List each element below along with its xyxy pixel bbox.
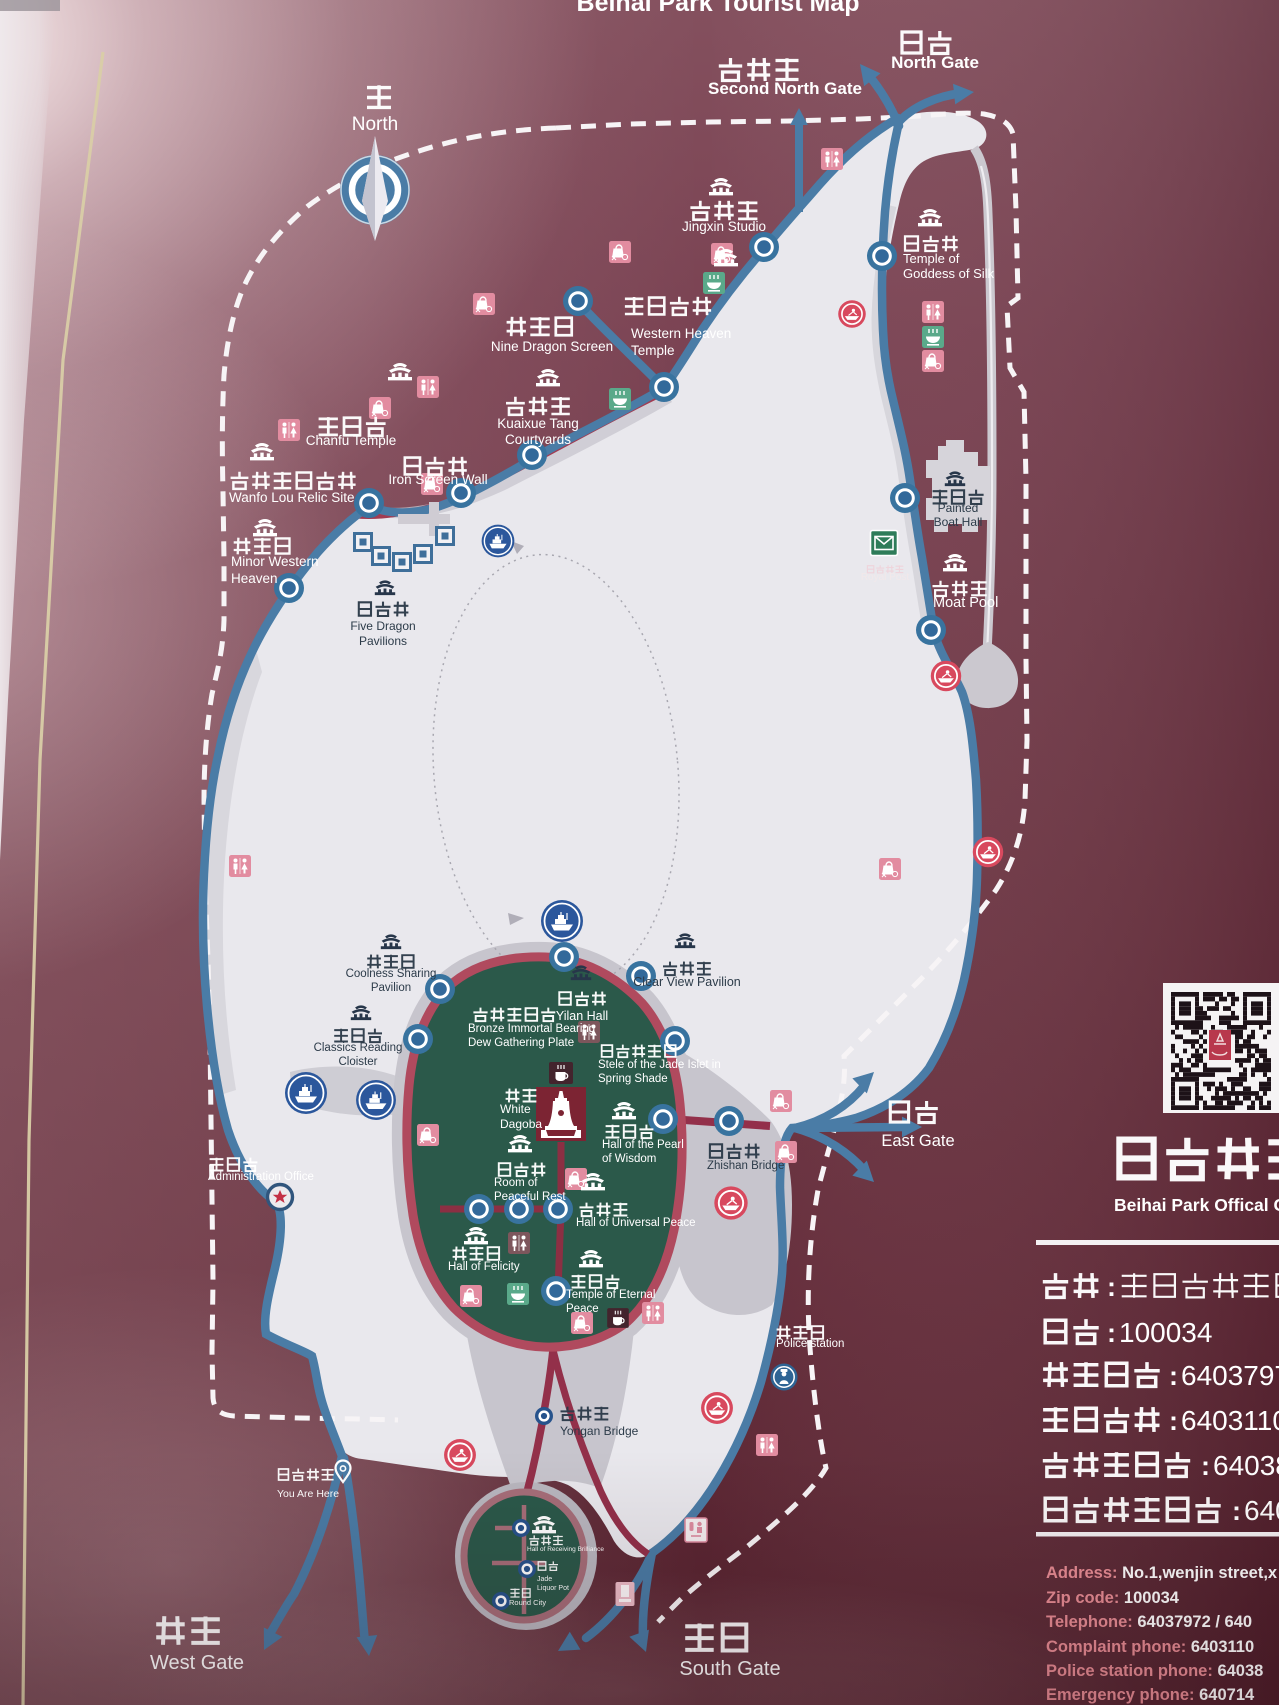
- svg-text:Coolness Sharing: Coolness Sharing: [346, 968, 437, 980]
- svg-text:Yilan Hall: Yilan Hall: [556, 1009, 608, 1023]
- svg-text:Stele of the Jade Islet in: Stele of the Jade Islet in: [598, 1059, 721, 1071]
- svg-text:Royal Post: Royal Post: [861, 572, 910, 583]
- svg-text:Cloister: Cloister: [339, 1056, 378, 1068]
- svg-text:Moat Pool: Moat Pool: [933, 595, 998, 611]
- svg-text:Peaceful Rest: Peaceful Rest: [494, 1191, 566, 1203]
- svg-text:Yongan Bridge: Yongan Bridge: [560, 1424, 639, 1438]
- svg-text:100034: 100034: [1119, 1317, 1212, 1348]
- svg-text:Beihai Park Tourist Map: Beihai Park Tourist Map: [577, 0, 860, 17]
- svg-text:Jingxin Studio: Jingxin Studio: [682, 219, 766, 234]
- svg-text:Courtyards: Courtyards: [505, 432, 571, 447]
- svg-text::: :: [1169, 1361, 1178, 1391]
- svg-text:Classics Reading: Classics Reading: [314, 1042, 403, 1054]
- svg-text:Dagoba: Dagoba: [500, 1117, 542, 1131]
- svg-text:Hall of Universal Peace: Hall of Universal Peace: [576, 1217, 696, 1229]
- svg-text:Police station: Police station: [776, 1338, 844, 1350]
- svg-text:Nine Dragon Screen: Nine Dragon Screen: [491, 339, 613, 354]
- svg-text:North: North: [352, 114, 398, 135]
- svg-text::: :: [1107, 1318, 1116, 1348]
- svg-text:Kuaixue Tang: Kuaixue Tang: [497, 416, 579, 431]
- svg-text:Beihai Park Offical Guide: Beihai Park Offical Guide: [1114, 1195, 1279, 1215]
- svg-text:Pavilions: Pavilions: [359, 634, 407, 648]
- svg-text:Temple of: Temple of: [903, 251, 960, 266]
- svg-text::: :: [1169, 1406, 1178, 1436]
- svg-text:Temple of Eternal: Temple of Eternal: [566, 1289, 656, 1301]
- svg-text:Western Heaven: Western Heaven: [631, 326, 731, 341]
- svg-text:East Gate: East Gate: [881, 1132, 954, 1150]
- svg-text:Hall of the Pearl: Hall of the Pearl: [602, 1139, 684, 1151]
- svg-text:Administration Office: Administration Office: [208, 1171, 314, 1183]
- svg-text:Hall of Felicity: Hall of Felicity: [448, 1261, 520, 1273]
- svg-text:Pavilion: Pavilion: [371, 982, 411, 994]
- svg-text:Minor Western: Minor Western: [231, 554, 319, 569]
- svg-text:Goddess of Silk: Goddess of Silk: [903, 266, 995, 281]
- svg-text:Iron Screen Wall: Iron Screen Wall: [388, 472, 487, 487]
- svg-text:Zhishan Bridge: Zhishan Bridge: [707, 1160, 784, 1172]
- svg-text:64037972: 64037972: [1181, 1360, 1279, 1391]
- svg-text:Wanfo Lou Relic Site: Wanfo Lou Relic Site: [229, 490, 355, 505]
- svg-text:North Gate: North Gate: [891, 53, 979, 72]
- svg-text:White: White: [500, 1102, 531, 1116]
- svg-text:Spring Shade: Spring Shade: [598, 1073, 668, 1085]
- svg-text:Peace: Peace: [566, 1303, 599, 1315]
- svg-text:Clear View Pavilion: Clear View Pavilion: [633, 975, 741, 989]
- svg-text:Temple: Temple: [631, 343, 675, 358]
- svg-text:Five Dragon: Five Dragon: [350, 619, 415, 633]
- svg-text:Dew Gathering Plate: Dew Gathering Plate: [468, 1037, 574, 1049]
- svg-text:Second North Gate: Second North Gate: [708, 79, 862, 98]
- svg-text:Bronze Immortal Bearing: Bronze Immortal Bearing: [468, 1023, 595, 1035]
- svg-text:Painted: Painted: [938, 501, 979, 515]
- svg-text:Boat Hall: Boat Hall: [934, 515, 983, 529]
- svg-text:of Wisdom: of Wisdom: [602, 1153, 656, 1165]
- svg-text:Chanfu Temple: Chanfu Temple: [306, 433, 397, 448]
- svg-text:Heaven: Heaven: [231, 571, 278, 586]
- svg-text:Room of: Room of: [494, 1177, 538, 1189]
- svg-text::: :: [1107, 1272, 1116, 1302]
- svg-text:64031102: 64031102: [1181, 1405, 1279, 1436]
